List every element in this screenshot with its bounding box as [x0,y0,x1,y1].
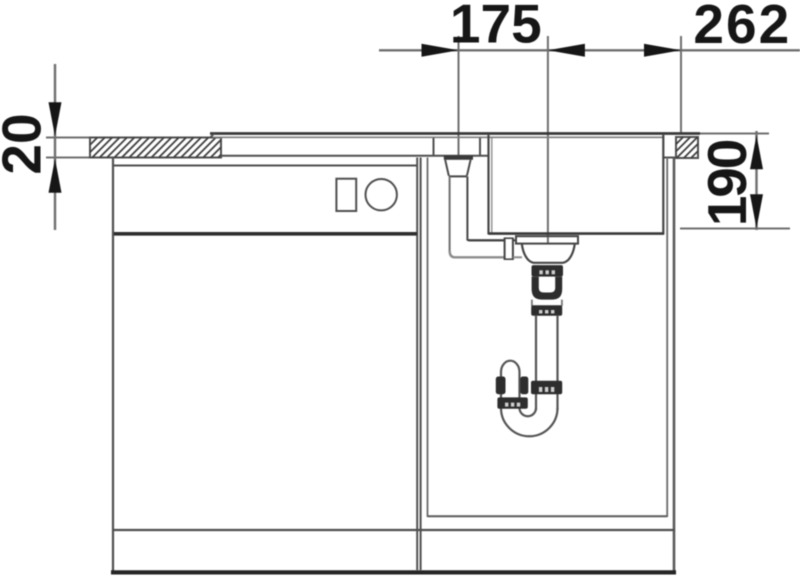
svg-text:20: 20 [0,113,53,174]
svg-text:190: 190 [696,140,758,226]
svg-text:175: 175 [450,0,542,54]
svg-text:262: 262 [693,0,791,55]
